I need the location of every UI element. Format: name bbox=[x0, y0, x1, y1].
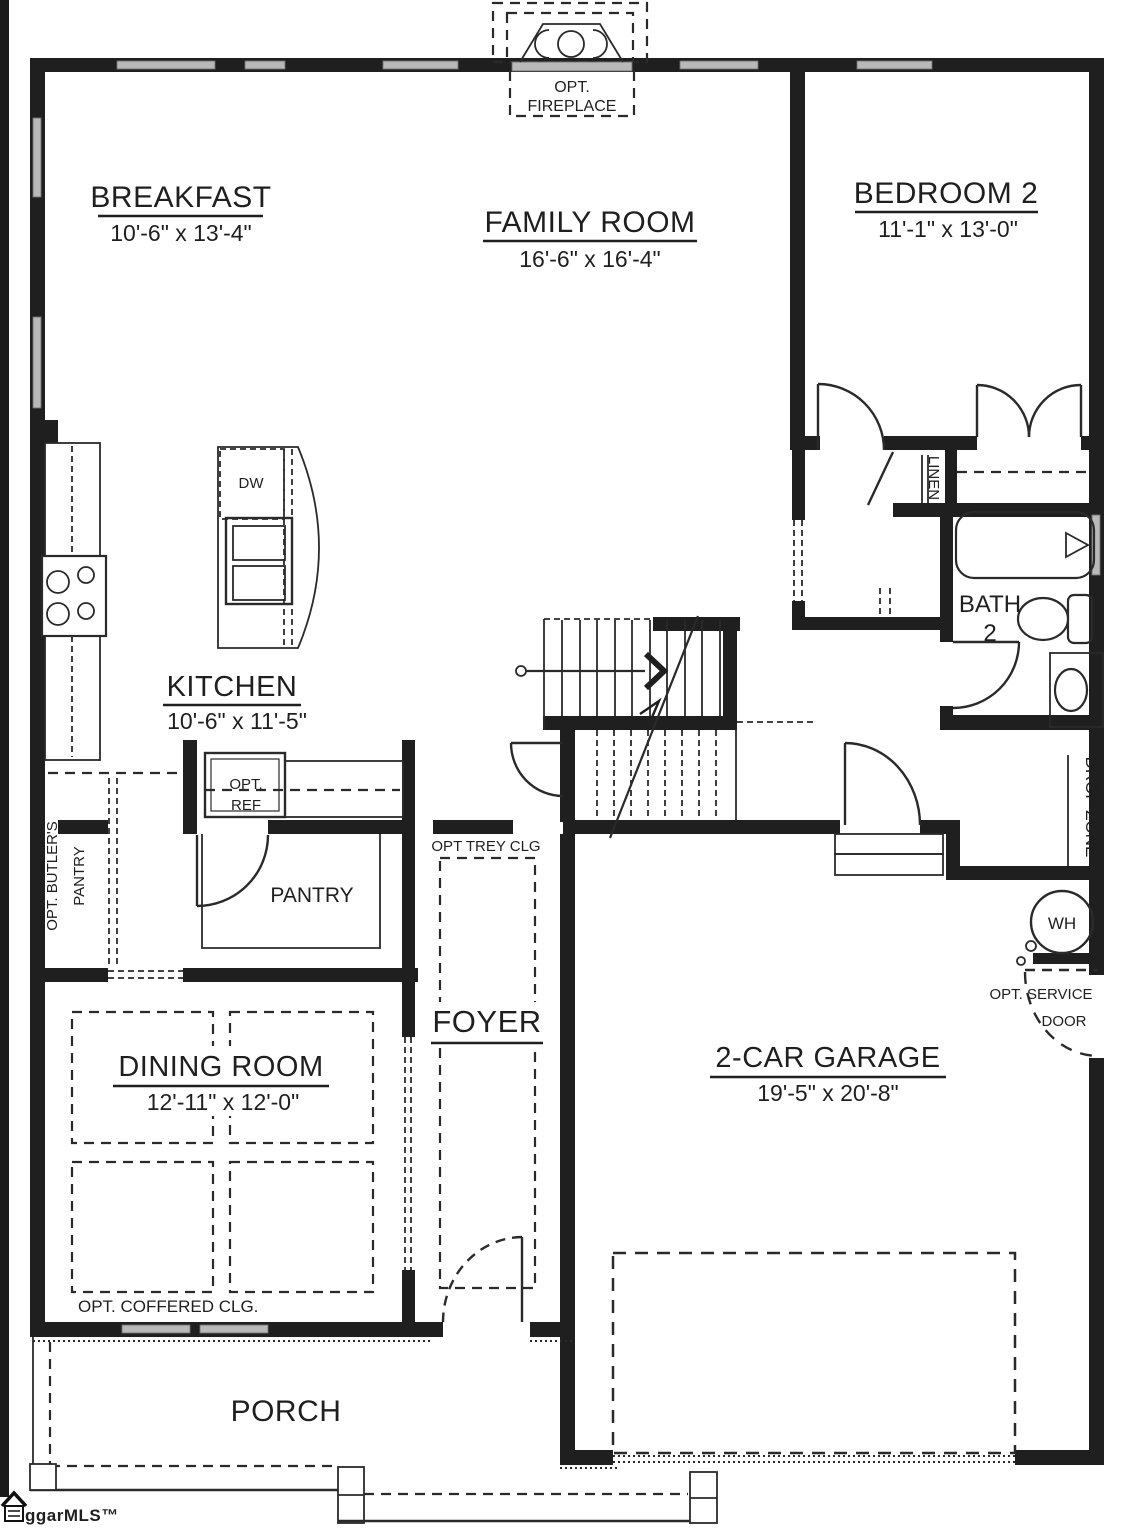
window bbox=[117, 61, 215, 69]
fireplace-inner-dashed bbox=[507, 13, 633, 62]
room-label-bedroom2: BEDROOM 2 bbox=[854, 177, 1039, 210]
window bbox=[122, 1325, 190, 1333]
room-label-foyer: FOYER bbox=[432, 1004, 541, 1039]
room-label-kitchen: KITCHEN bbox=[167, 671, 298, 703]
label-coffered-ceiling: OPT. COFFERED CLG. bbox=[78, 1297, 258, 1316]
label-trey-ceiling: OPT TREY CLG bbox=[431, 838, 540, 855]
label-opt-ref-line1: OPT. bbox=[229, 776, 262, 793]
window bbox=[245, 61, 285, 69]
wall-segment bbox=[790, 436, 820, 450]
wall-segment bbox=[30, 968, 108, 982]
linen-door-leaf bbox=[868, 452, 893, 505]
toilet-tank bbox=[1068, 595, 1092, 643]
label-butlers-line1: OPT. BUTLER'S bbox=[44, 821, 61, 931]
mls-logo: ggarMLS™ bbox=[2, 1493, 119, 1525]
label-butlers-line2: PANTRY bbox=[71, 846, 88, 905]
front-door-swing bbox=[443, 1237, 522, 1322]
wall-segment bbox=[723, 617, 737, 730]
wall-segment bbox=[790, 72, 805, 450]
window bbox=[33, 118, 41, 197]
garage-step bbox=[835, 854, 943, 875]
window bbox=[857, 61, 932, 69]
understair-door-swing bbox=[511, 743, 563, 796]
wall-segment bbox=[893, 503, 1104, 517]
service-door-hinge bbox=[1017, 957, 1025, 965]
wall-segment bbox=[884, 436, 977, 450]
room-label-dining: DINING ROOM bbox=[118, 1051, 323, 1083]
label-opt-fireplace-line1: OPT. bbox=[554, 79, 590, 96]
room-label-porch: PORCH bbox=[231, 1395, 342, 1428]
label-opt-fireplace-line2: FIREPLACE bbox=[528, 98, 617, 115]
wall-segment bbox=[563, 820, 840, 834]
label-dishwasher: DW bbox=[239, 475, 265, 492]
stair-direction-arrow bbox=[646, 654, 664, 688]
closet-door-swing bbox=[1029, 385, 1081, 437]
porch-column bbox=[30, 1464, 56, 1490]
coffered-ceiling-box bbox=[230, 1162, 373, 1292]
wall-segment bbox=[183, 968, 418, 982]
toilet-bowl bbox=[1018, 598, 1068, 640]
fireplace-arc-right bbox=[593, 30, 607, 58]
coffered-ceiling-box bbox=[72, 1162, 213, 1292]
bath-sink bbox=[1055, 669, 1087, 711]
room-label-pantry: PANTRY bbox=[270, 884, 353, 907]
sink-basin bbox=[233, 566, 285, 600]
wall-segment bbox=[58, 820, 108, 834]
page-edge-artifact bbox=[0, 0, 9, 1497]
label-water-heater: WH bbox=[1048, 914, 1076, 933]
logo-house-body-icon bbox=[5, 1506, 23, 1521]
wall-segment bbox=[1089, 1058, 1104, 1465]
wall-segment bbox=[433, 820, 513, 834]
room-dims-bedroom2: 11'-1" x 13'-0" bbox=[878, 216, 1018, 242]
sink-basin bbox=[233, 526, 285, 560]
room-dims-dining: 12'-11" x 12'-0" bbox=[147, 1089, 300, 1115]
fireplace-flue bbox=[558, 31, 584, 57]
sink-faucet-dot bbox=[1090, 687, 1096, 693]
wall-segment bbox=[792, 450, 805, 520]
closet-door-swing bbox=[977, 385, 1029, 437]
garage-entry-door-swing bbox=[845, 743, 920, 825]
wall-segment bbox=[1033, 953, 1104, 964]
room-label-family-room: FAMILY ROOM bbox=[484, 206, 695, 239]
garage-step bbox=[835, 834, 943, 854]
floor-plan-page: BREAKFAST 10'-6" x 13'-4" FAMILY ROOM 16… bbox=[0, 0, 1136, 1534]
fireplace-hearth-sill bbox=[512, 62, 632, 71]
room-dims-garage: 19'-5" x 20'-8" bbox=[757, 1080, 898, 1106]
bedroom2-door-swing bbox=[818, 384, 884, 450]
wall-segment bbox=[268, 820, 402, 834]
label-service-door-line2: DOOR bbox=[1042, 1013, 1087, 1030]
room-label-bath2-line2: 2 bbox=[983, 620, 996, 647]
wall-segment bbox=[30, 420, 58, 443]
stair-direction-start bbox=[516, 666, 526, 676]
room-label-breakfast: BREAKFAST bbox=[90, 181, 271, 214]
wall-segment bbox=[792, 617, 952, 630]
room-dims-family-room: 16'-6" x 16'-4" bbox=[519, 246, 660, 272]
label-linen: LINEN bbox=[925, 456, 942, 500]
wall-segment bbox=[560, 834, 575, 1465]
kitchen-sink bbox=[226, 518, 292, 604]
floor-plan-drawing: BREAKFAST 10'-6" x 13'-4" FAMILY ROOM 16… bbox=[0, 0, 1136, 1534]
label-drop-zone: DROP ZONE bbox=[1082, 757, 1101, 858]
fireplace-outer-dashed bbox=[493, 3, 647, 62]
wall-segment bbox=[1081, 436, 1104, 450]
tub-faucet bbox=[1066, 533, 1088, 557]
garage-door-dashed bbox=[613, 1253, 1015, 1453]
wall-segment bbox=[945, 450, 957, 510]
window bbox=[200, 1325, 268, 1333]
wall-segment bbox=[946, 866, 1104, 880]
room-dims-breakfast: 10'-6" x 13'-4" bbox=[110, 220, 251, 246]
window bbox=[33, 317, 41, 408]
ref-and-butlers bbox=[48, 753, 403, 978]
window bbox=[383, 61, 458, 69]
wall-segment bbox=[402, 740, 415, 1037]
water-heater-pipe bbox=[1026, 941, 1036, 951]
wall-segment bbox=[543, 716, 737, 730]
wall-segment bbox=[183, 740, 197, 834]
wall-segment bbox=[1015, 1450, 1104, 1465]
label-service-door-line1: OPT. SERVICE bbox=[989, 986, 1092, 1003]
room-label-garage: 2-CAR GARAGE bbox=[715, 1042, 940, 1074]
doors bbox=[197, 384, 1098, 1322]
pantry-door-swing bbox=[197, 835, 268, 906]
wall-segment bbox=[402, 1270, 415, 1337]
trey-ceiling-box bbox=[440, 858, 535, 1288]
wall-segment bbox=[30, 58, 45, 1322]
bath2-door-swing bbox=[953, 642, 1019, 708]
logo-text: ggarMLS™ bbox=[25, 1506, 119, 1525]
label-opt-ref-line2: REF bbox=[231, 797, 261, 814]
window bbox=[680, 61, 758, 69]
room-label-bath2-line1: BATH bbox=[959, 591, 1021, 618]
porch-structure bbox=[30, 1337, 717, 1523]
room-dims-kitchen: 10'-6" x 11'-5" bbox=[167, 708, 307, 734]
